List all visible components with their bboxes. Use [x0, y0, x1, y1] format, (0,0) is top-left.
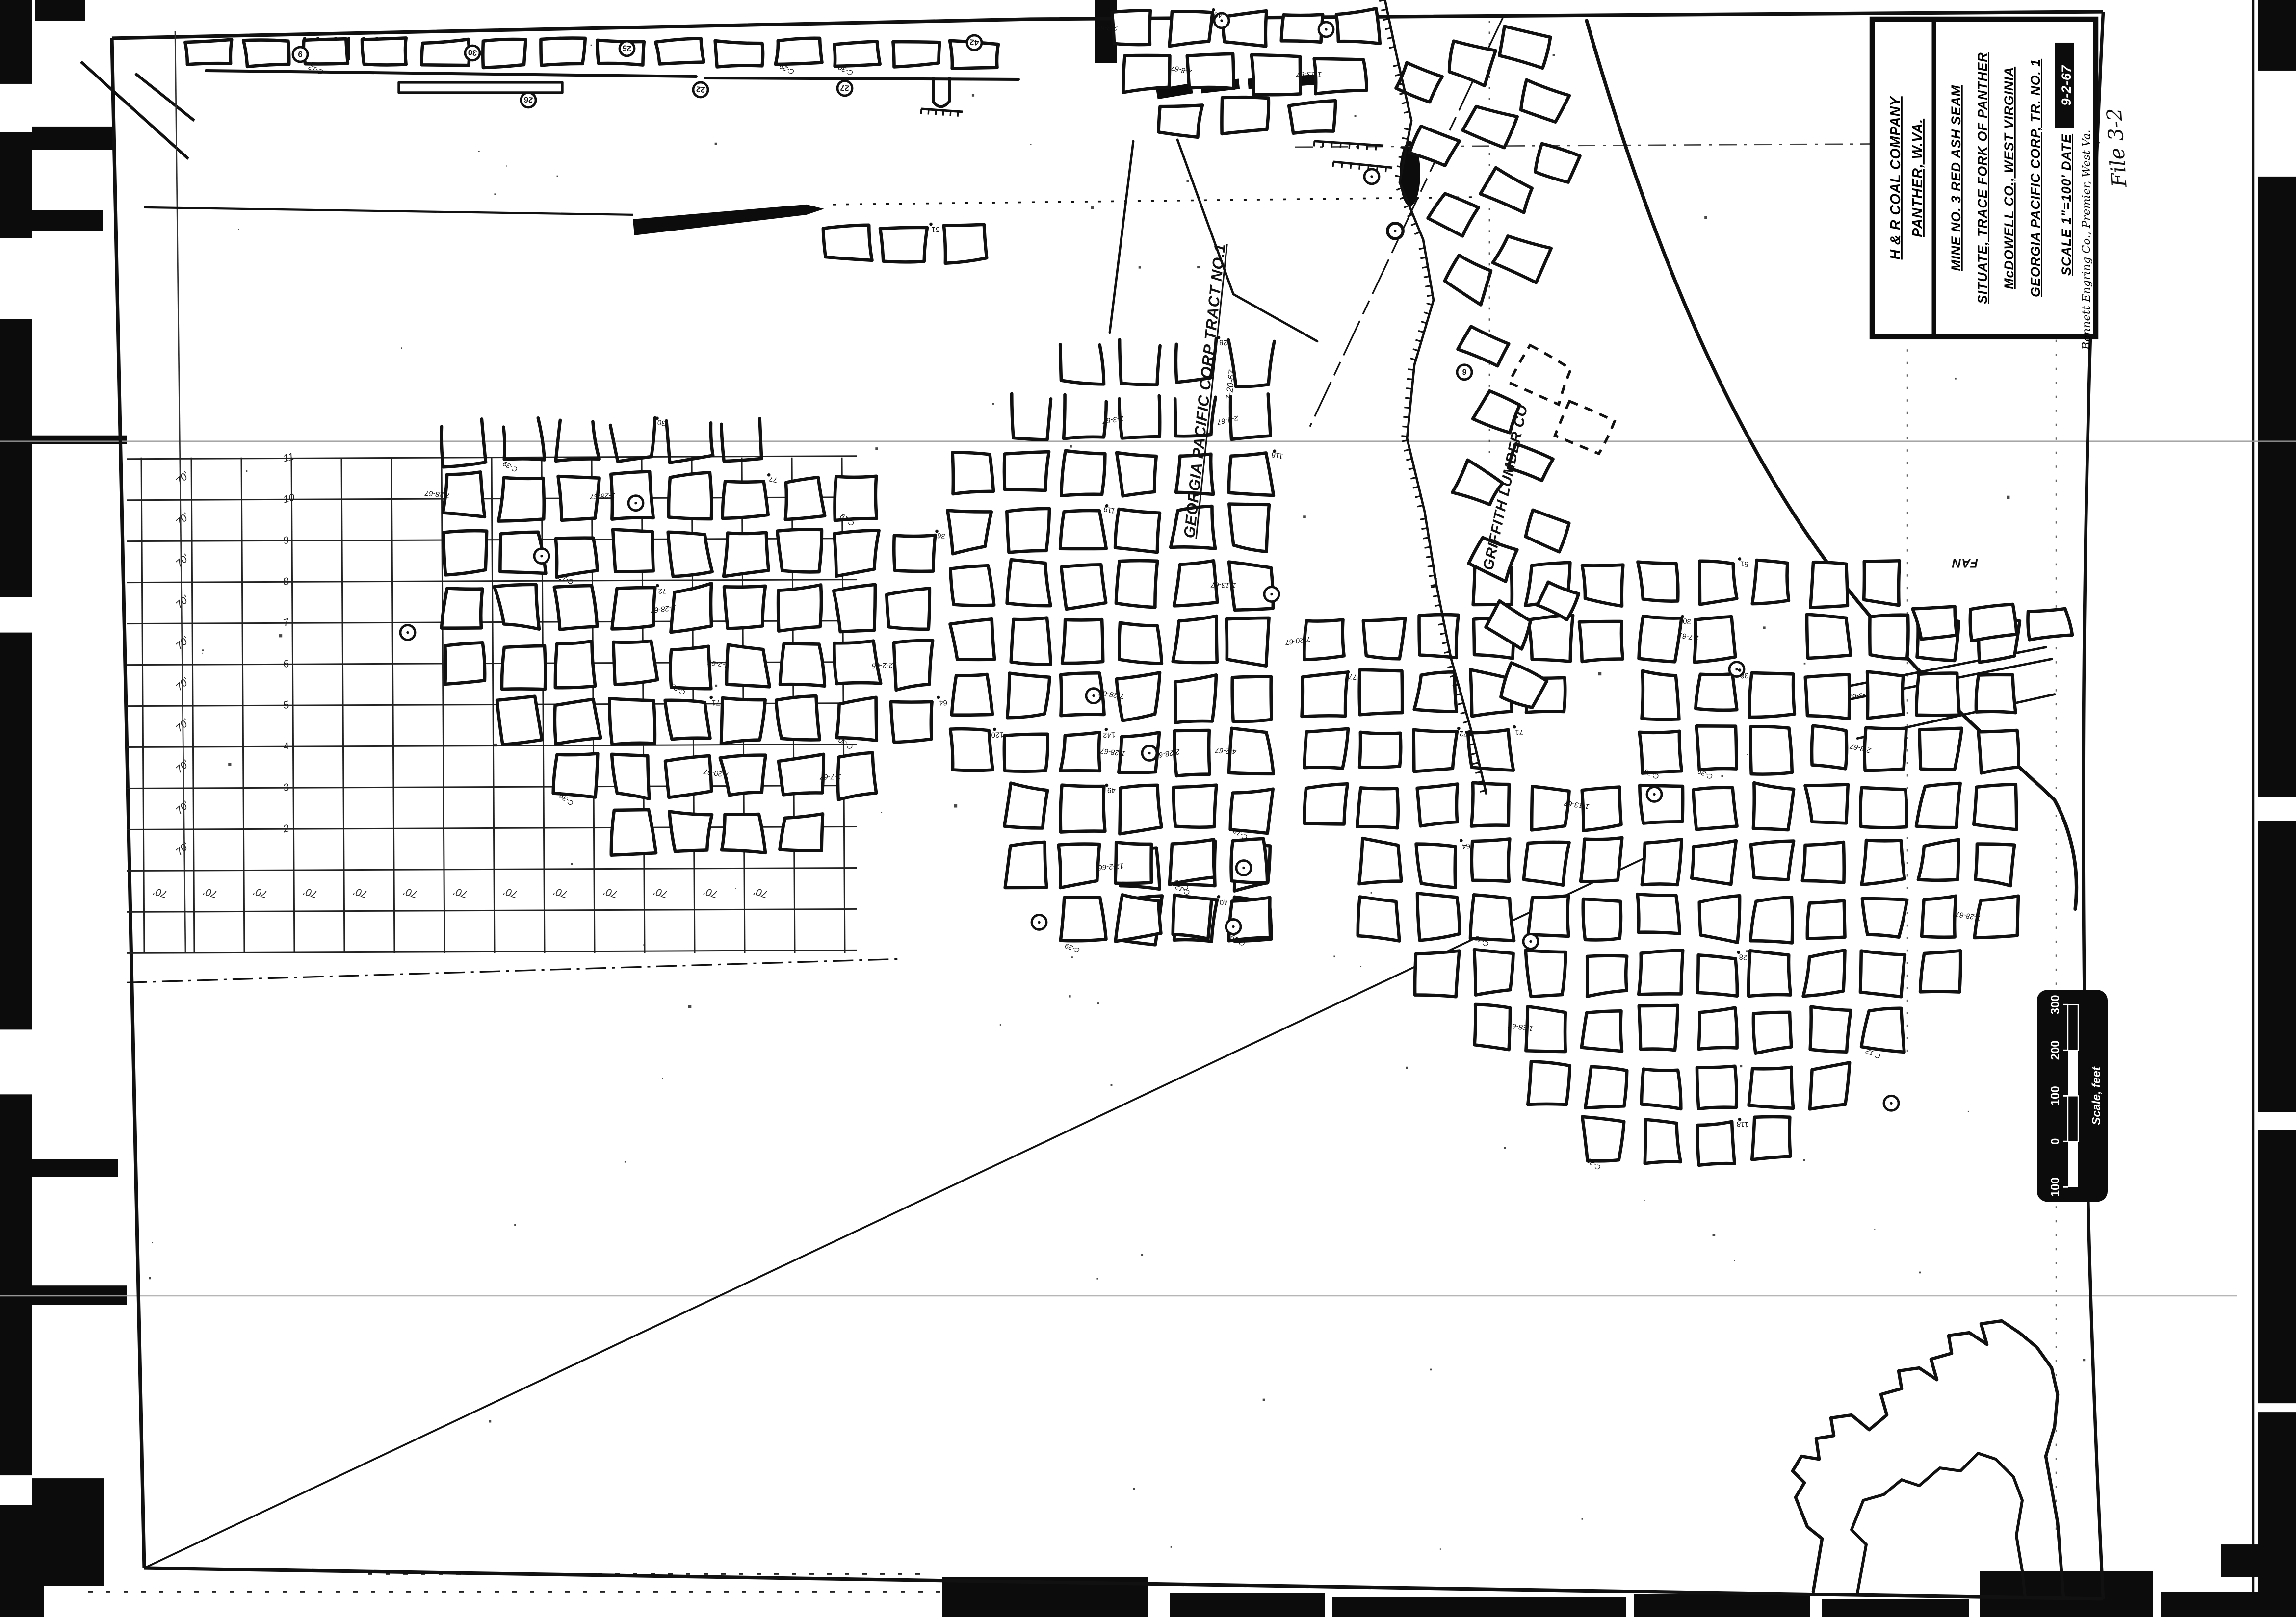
scale-bar-tick-label: 100	[2049, 1177, 2062, 1197]
paper-speckle	[1303, 515, 1306, 518]
hatch-tick	[1400, 148, 1406, 149]
survey-station-dot	[1890, 1102, 1892, 1105]
mine-pillar	[1123, 55, 1170, 92]
mine-pillar	[609, 698, 654, 745]
mine-pillar	[502, 646, 546, 689]
advance-date-note: 1-7-67	[819, 772, 841, 781]
paper-speckle	[401, 347, 402, 349]
engineer-note: Bennett Engring Co., Premier, West Va.	[2080, 129, 2093, 350]
paper-speckle	[625, 1161, 626, 1163]
title-block: H & R COAL COMPANY PANTHER, W.VA. MINE N…	[1872, 19, 2096, 350]
hatch-tick	[1422, 267, 1428, 268]
paper-speckle	[1333, 956, 1335, 957]
spot-elevation-number: 64	[939, 698, 947, 707]
hatch-tick	[1404, 408, 1410, 408]
paper-speckle	[1968, 1111, 1969, 1112]
paper-speckle	[1734, 1260, 1735, 1261]
mine-pillar	[947, 511, 991, 554]
mine-pillar	[1750, 897, 1792, 943]
hatch-tick	[1435, 605, 1440, 606]
hatch-tick	[1425, 547, 1431, 548]
hatch-tick	[1403, 417, 1409, 417]
advance-date-note: 2-3-67	[1096, 24, 1118, 32]
mine-pillar	[1698, 1008, 1737, 1049]
mine-pillar	[1357, 788, 1398, 828]
paper-speckle	[1030, 144, 1031, 145]
mine-pillar	[669, 472, 711, 519]
mine-pillar	[780, 814, 823, 850]
paper-speckle	[1263, 1399, 1265, 1401]
hatch-tick	[1433, 595, 1438, 596]
hatch-tick	[1420, 257, 1426, 258]
mine-pillar	[1119, 623, 1162, 664]
survey-station-dot	[634, 502, 637, 504]
mine-pillar	[612, 754, 649, 799]
paper-speckle	[1069, 995, 1070, 997]
mine-pillar	[1116, 561, 1157, 607]
mine-pillar	[1638, 562, 1678, 601]
paper-speckle	[1360, 966, 1361, 967]
spot-elevation-number: 72	[1459, 729, 1467, 738]
mine-pillar	[1697, 1122, 1734, 1165]
mine-pillar	[243, 40, 289, 67]
mine-pillar	[554, 586, 597, 630]
mine-pillar	[1860, 951, 1905, 997]
mine-pillar	[1359, 670, 1402, 715]
mine-pillar	[1004, 783, 1047, 828]
mine-pillar	[1302, 672, 1348, 717]
paper-speckle	[1091, 206, 1094, 209]
paper-speckle	[1133, 1488, 1135, 1490]
mine-pillar	[498, 478, 544, 521]
hatch-tick	[1438, 624, 1444, 625]
scale-bar-tick-label: 200	[2049, 1040, 2062, 1060]
hatch-tick	[1424, 276, 1430, 277]
paper-speckle	[1874, 1229, 1875, 1230]
hatch-tick	[1399, 157, 1405, 158]
hatch-tick	[1426, 556, 1432, 557]
survey-station-number: 42	[969, 37, 979, 47]
mine-pillar	[1359, 732, 1401, 768]
survey-station-dot	[1232, 925, 1234, 928]
mine-pillar	[668, 532, 712, 577]
right-scan-strip	[2258, 1412, 2296, 1617]
mine-pillar	[1222, 97, 1268, 134]
mine-pillar	[894, 535, 935, 571]
mine-pillar	[1916, 783, 1960, 827]
mine-pillar	[1920, 951, 1960, 992]
mine-pillar	[1363, 618, 1405, 659]
mine-pillar	[1252, 55, 1301, 95]
title-county: McDOWELL CO., WEST VIRGINIA	[2002, 67, 2016, 289]
paper-speckle	[972, 94, 974, 97]
mine-pillar	[1699, 561, 1737, 605]
mine-pillar	[442, 588, 482, 628]
mine-pillar	[613, 529, 653, 571]
mine-pillar	[1976, 675, 2016, 713]
left-bottom-block	[32, 1478, 104, 1586]
hatch-tick	[1431, 585, 1436, 586]
title-date-value: 9-2-67	[2059, 64, 2074, 105]
paper-speckle	[1430, 1369, 1432, 1371]
paper-speckle	[1553, 54, 1555, 56]
spot-elevation-number: 36	[1740, 671, 1748, 680]
mine-pillar	[1060, 511, 1106, 549]
mine-pillar	[721, 698, 765, 744]
paper-speckle	[489, 1420, 492, 1423]
spot-elevation-number: 71	[712, 698, 720, 707]
hatch-tick	[1367, 145, 1367, 150]
mine-pillar	[724, 586, 765, 629]
paper-speckle	[1504, 1147, 1506, 1149]
paper-speckle	[1070, 445, 1072, 448]
mine-pillar	[1974, 784, 2016, 829]
mine-pillar	[1642, 671, 1679, 720]
mine-pillar	[541, 38, 585, 66]
right-scan-strip	[2258, 1130, 2296, 1403]
spot-elevation-number: 28	[1739, 952, 1748, 962]
hatch-tick	[1431, 586, 1437, 587]
spot-elevation-number: 51	[932, 225, 940, 233]
spot-elevation-number: 51	[1740, 559, 1749, 568]
survey-station-dot	[1325, 28, 1327, 30]
mine-pillar	[1170, 11, 1213, 46]
mine-pillar	[785, 477, 825, 519]
left-margin-bar	[32, 1159, 118, 1177]
spot-elevation-number: 71	[1515, 728, 1523, 736]
hatch-tick	[1395, 176, 1401, 177]
mine-pillar	[185, 40, 232, 65]
mine-pillar	[1916, 673, 1959, 716]
mine-pillar	[445, 642, 485, 684]
mine-pillar	[671, 646, 711, 689]
mine-pillar	[1229, 453, 1274, 495]
paper-speckle	[735, 888, 736, 889]
hatch-tick	[1402, 138, 1408, 139]
paper-speckle	[1704, 216, 1707, 219]
mine-pillar	[834, 41, 880, 66]
mine-pillar	[1695, 617, 1736, 662]
mine-pillar	[1528, 616, 1573, 662]
mine-pillar	[1414, 672, 1457, 711]
mine-pillar	[1862, 899, 1907, 937]
mine-pillar	[1976, 844, 2014, 886]
mine-pillar	[1305, 784, 1348, 824]
paper-speckle	[1955, 378, 1957, 380]
mine-pillar	[1749, 673, 1795, 717]
spot-elevation-number: 77	[768, 474, 778, 484]
title-tract: GEORGIA PACIFIC CORP, TR. NO. 1	[2028, 59, 2043, 297]
scale-bar: 1000100200300 Scale, feet	[2037, 990, 2108, 1202]
mine-pillar	[1861, 1008, 1904, 1052]
mine-pillar	[894, 641, 933, 690]
left-margin-bar	[32, 127, 115, 150]
mine-pillar	[1694, 788, 1737, 829]
hatch-tick	[1405, 398, 1411, 398]
paper-speckle	[2007, 496, 2009, 499]
paper-speckle	[1713, 1234, 1716, 1236]
survey-station-number: 27	[840, 83, 850, 93]
hatch-tick	[936, 110, 936, 115]
paper-speckle	[591, 45, 592, 46]
mine-pillar	[1583, 899, 1621, 940]
left-margin-bar	[32, 210, 103, 231]
scale-bar-tick-label: 300	[2049, 995, 2062, 1014]
mine-pillar	[1524, 842, 1569, 885]
survey-station-dot	[1735, 668, 1738, 670]
survey-station-dot	[1038, 921, 1040, 924]
mine-pillar	[880, 228, 927, 262]
mine-pillar	[950, 619, 995, 660]
paper-speckle	[238, 229, 239, 230]
hatch-tick	[1331, 142, 1332, 147]
mine-pillar	[715, 41, 763, 67]
advance-date-note: 1-13-67	[1210, 580, 1236, 590]
mine-pillar	[1807, 900, 1845, 938]
spot-elevation-number: 72	[658, 587, 666, 595]
mine-pillar	[1417, 784, 1458, 826]
hatch-tick	[1421, 528, 1427, 529]
mine-pillar	[1187, 54, 1234, 89]
spot-elevation-number: 118	[1736, 1120, 1748, 1129]
mine-pillar	[838, 753, 876, 800]
survey-station-dot	[1270, 593, 1273, 595]
left-margin-bar	[32, 1285, 127, 1305]
paper-speckle	[557, 176, 558, 177]
mine-pillar	[1805, 784, 1848, 823]
mine-pillar	[611, 810, 656, 855]
spot-elevation-number: 36	[937, 531, 946, 540]
hatch-tick	[921, 109, 921, 114]
mine-pillar	[1061, 451, 1105, 496]
mine-pillar	[1975, 896, 2018, 938]
mine-pillar	[1639, 616, 1682, 662]
paper-speckle	[1598, 672, 1601, 675]
mine-pillar	[1532, 786, 1569, 830]
corner-blob	[2221, 1544, 2265, 1577]
mine-pillar	[1223, 11, 1266, 46]
mine-pillar	[1173, 616, 1217, 663]
spot-elevation-number: 30	[657, 418, 666, 428]
mine-pillar	[887, 588, 930, 629]
paper-speckle	[715, 685, 717, 687]
hatch-tick	[1402, 426, 1408, 427]
survey-station-dot	[1394, 230, 1396, 232]
paper-speckle	[1096, 1278, 1098, 1279]
hatch-tick	[1401, 436, 1407, 437]
mine-pillar	[555, 641, 595, 688]
paper-speckle	[2083, 1359, 2086, 1362]
right-scan-strip	[2258, 0, 2296, 71]
mine-pillar	[1697, 955, 1737, 996]
advance-date-note: 12-2-66	[871, 661, 897, 670]
paper-speckle	[715, 143, 717, 145]
hatch-tick	[1342, 163, 1342, 168]
paper-speckle	[202, 649, 204, 651]
hatch-tick	[1442, 642, 1448, 643]
mine-pillar	[893, 42, 939, 67]
mine-pillar	[1805, 674, 1850, 719]
mine-pillar	[724, 533, 769, 577]
mine-pillar	[613, 641, 657, 684]
mine-pillar	[722, 814, 765, 853]
mine-pillar	[1582, 565, 1623, 606]
mine-pillar	[1645, 1120, 1681, 1164]
paper-speckle	[1171, 1546, 1172, 1548]
title-situate: SITUATE, TRACE FORK OF PANTHER	[1975, 52, 1990, 304]
mine-pillar	[483, 39, 525, 68]
hatch-tick	[950, 111, 951, 116]
mine-pillar	[671, 583, 711, 632]
survey-station-dot	[1092, 694, 1095, 697]
title-location: PANTHER, W.VA.	[1910, 119, 1926, 237]
paper-speckle	[662, 1078, 663, 1079]
mine-pillar	[779, 754, 824, 795]
mine-pillar	[553, 753, 598, 797]
mine-pillar	[1007, 673, 1049, 718]
mine-pillar	[777, 529, 822, 572]
advance-date-note: 1-13-67	[1296, 70, 1322, 78]
hatch-tick	[943, 110, 943, 115]
mine-pillar	[1528, 896, 1569, 936]
mine-pillar	[1810, 1063, 1850, 1109]
paper-speckle	[478, 151, 480, 152]
mine-pillar	[1011, 618, 1051, 665]
mine-pillar	[1528, 1061, 1570, 1105]
mine-pillar	[1696, 726, 1737, 770]
mine-pillar	[1870, 615, 1908, 659]
paper-speckle	[1721, 775, 1723, 777]
paper-speckle	[1197, 266, 1200, 268]
hatch-tick	[1407, 379, 1413, 379]
mine-pillar	[1639, 950, 1683, 994]
survey-station-number: 22	[696, 84, 705, 94]
hatch-tick	[1429, 575, 1435, 576]
mine-pillar	[1753, 1012, 1791, 1054]
mine-pillar	[669, 812, 712, 852]
mine-pillar	[1751, 841, 1794, 880]
mine-pillar	[555, 699, 600, 744]
paper-speckle	[571, 863, 573, 865]
mine-pillar	[1232, 677, 1272, 721]
mine-pillar	[1802, 842, 1844, 882]
mine-pillar	[1004, 452, 1049, 490]
paper-speckle	[1371, 892, 1372, 894]
survey-station-dot	[1242, 867, 1245, 869]
paper-speckle	[1071, 956, 1073, 958]
paper-speckle	[514, 1224, 516, 1226]
mine-pillar	[1807, 614, 1851, 658]
mine-pillar	[1305, 729, 1348, 769]
hatch-tick	[928, 109, 929, 114]
mine-pillar	[1749, 1067, 1794, 1108]
hatch-tick	[1340, 143, 1341, 148]
mine-pillar	[778, 585, 821, 631]
paper-speckle	[228, 763, 231, 766]
mine-pillar	[1699, 896, 1740, 942]
mine-pillar	[1474, 950, 1513, 995]
spot-elevation-number: 40	[1219, 898, 1228, 906]
paper-speckle	[246, 470, 247, 472]
spot-elevation-number: 77	[1348, 672, 1357, 681]
hatch-tick	[1423, 538, 1429, 539]
mine-pillar	[655, 38, 704, 64]
hatch-tick	[1444, 652, 1450, 653]
hatch-tick	[1425, 286, 1431, 287]
paper-speckle	[688, 1005, 691, 1008]
paper-speckle	[992, 403, 994, 405]
mine-pillar	[1752, 560, 1789, 604]
mine-pillar	[1867, 672, 1904, 719]
mine-pillar	[1417, 893, 1460, 940]
mine-pillar	[1061, 565, 1106, 609]
mine-pillar	[952, 674, 992, 715]
paper-speckle	[1644, 1200, 1645, 1201]
paper-speckle	[1355, 115, 1357, 117]
scanned-mine-map: 11109876543270'70'70'70'70'70'70'70'70'7…	[0, 0, 2296, 1617]
spot-elevation-number: 118	[1271, 450, 1283, 461]
mine-pillar	[837, 697, 877, 741]
hatch-tick	[1408, 369, 1414, 370]
mine-pillar	[1752, 1117, 1790, 1160]
scale-bar-caption: Scale, feet	[2090, 1066, 2103, 1125]
mine-pillar	[776, 696, 820, 740]
mine-pillar	[1579, 621, 1623, 662]
survey-station-number: 26	[523, 95, 533, 104]
mine-pillar	[1289, 101, 1335, 133]
mine-pillar	[1862, 840, 1905, 885]
top-left-blob	[35, 0, 85, 21]
paper-speckle	[1582, 1518, 1583, 1519]
mine-pillar	[953, 453, 993, 494]
mine-pillar	[1810, 1007, 1851, 1052]
hatch-tick	[1351, 163, 1351, 168]
mine-pillar	[362, 38, 406, 65]
paper-speckle	[881, 812, 882, 813]
title-scale-label: SCALE 1"=100' DATE	[2059, 134, 2074, 276]
survey-station-number: 9	[298, 50, 303, 59]
mine-pillar	[1753, 783, 1794, 830]
hatch-tick	[1420, 518, 1426, 519]
survey-station-dot	[406, 631, 409, 634]
hatch-tick	[1419, 248, 1425, 249]
hatch-tick	[1397, 166, 1403, 167]
paper-speckle	[1111, 1084, 1113, 1086]
mine-pillar	[1475, 1004, 1510, 1050]
mine-pillar	[1062, 619, 1103, 663]
mine-pillar	[1336, 8, 1380, 43]
mine-pillar	[1696, 674, 1737, 710]
mine-pillar	[1059, 844, 1099, 888]
paper-speckle	[1740, 1065, 1742, 1067]
spot-elevation-number: 49	[1107, 786, 1116, 795]
mine-pillar	[1913, 607, 1957, 640]
mine-pillar	[1472, 839, 1510, 881]
hatch-tick	[958, 111, 958, 116]
fan-label: FAN	[1952, 556, 1978, 570]
paper-speckle	[1139, 266, 1141, 269]
hatch-tick	[1385, 167, 1386, 172]
paper-speckle	[1141, 1254, 1143, 1256]
mine-pillar	[1314, 59, 1367, 94]
title-company: H & R COAL COMPANY	[1888, 95, 1904, 259]
spot-elevation-number: 64	[1461, 842, 1470, 850]
hatch-tick	[1333, 162, 1333, 167]
scale-bar-tick-label: 0	[2049, 1138, 2062, 1145]
survey-station-dot	[540, 555, 543, 557]
mine-pillar	[1117, 453, 1156, 496]
mine-pillar	[1231, 839, 1268, 883]
